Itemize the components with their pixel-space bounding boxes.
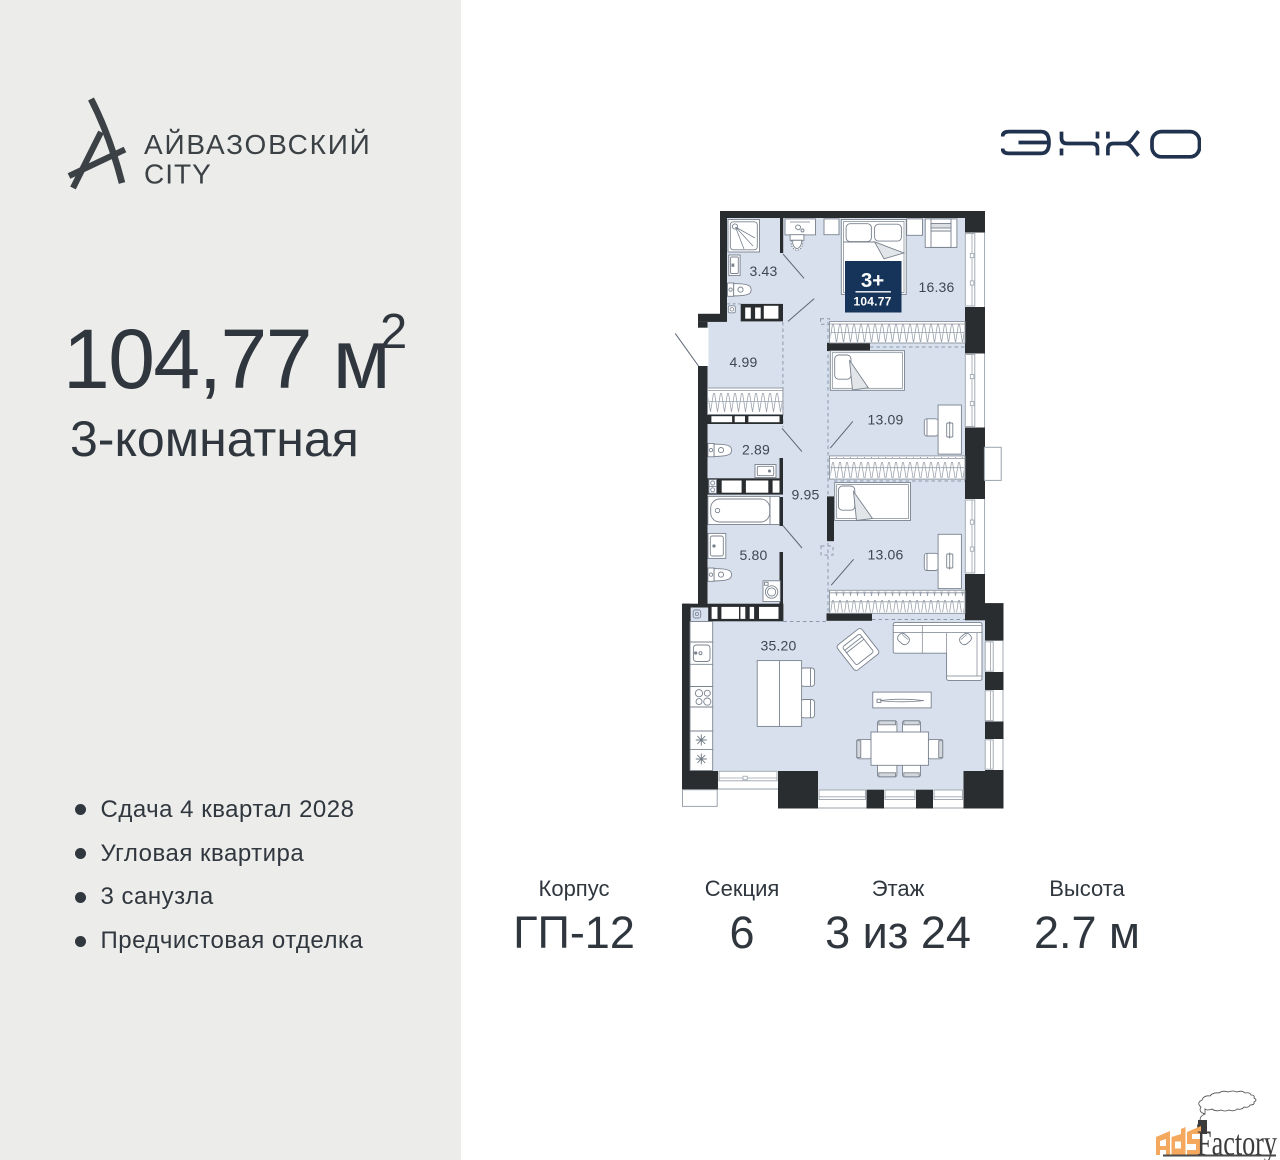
svg-text:13.06: 13.06	[867, 547, 903, 563]
svg-text:3+: 3+	[861, 269, 884, 292]
svg-text:2.89: 2.89	[742, 442, 770, 458]
svg-text:3.43: 3.43	[749, 263, 777, 279]
svg-text:АЙВАЗОВСКИЙ: АЙВАЗОВСКИЙ	[144, 129, 372, 160]
svg-text:5.80: 5.80	[739, 547, 767, 563]
svg-text:16.36: 16.36	[918, 279, 954, 295]
svg-text:4.99: 4.99	[729, 354, 757, 370]
svg-text:Factory: Factory	[1197, 1123, 1277, 1160]
svg-text:CITY: CITY	[144, 159, 212, 190]
svg-text:13.09: 13.09	[867, 412, 903, 428]
svg-text:35.20: 35.20	[760, 638, 796, 654]
svg-text:104.77: 104.77	[854, 295, 892, 309]
svg-text:9.95: 9.95	[791, 487, 819, 503]
